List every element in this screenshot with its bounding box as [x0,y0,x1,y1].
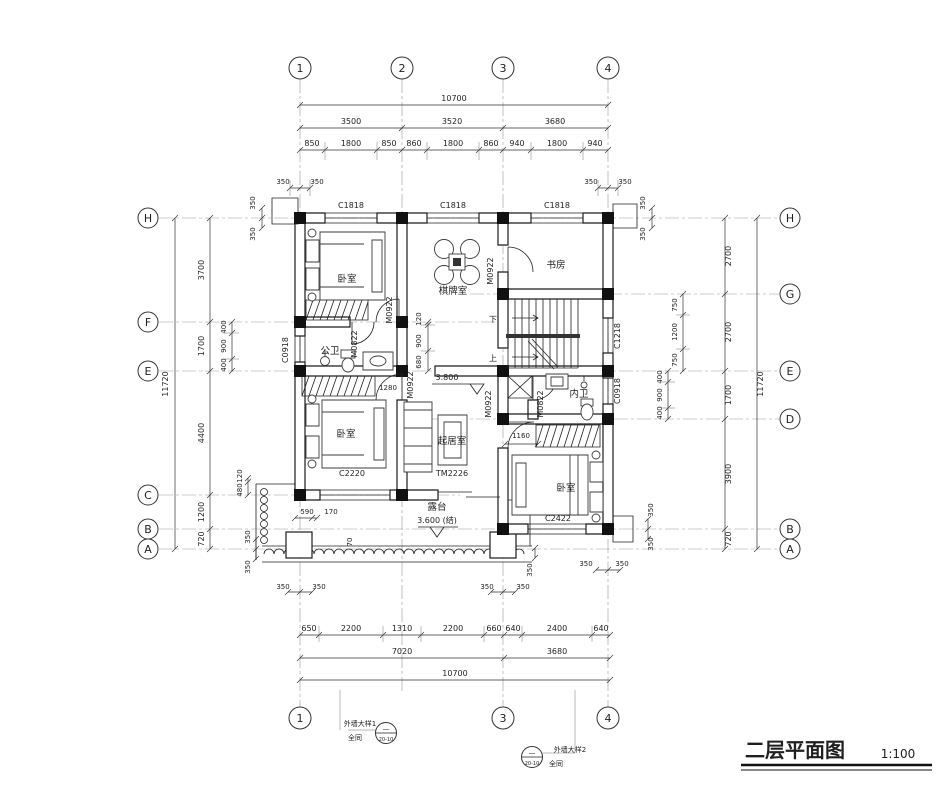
stair-up-label: 上 [489,354,497,363]
dim: 860 [483,139,498,148]
grid-right-A: A [786,543,794,556]
dim: 1700 [197,336,206,356]
title-text: 二层平面图 [745,738,845,762]
sliding-door-tm2226 [438,492,500,497]
dim: 850 [304,139,319,148]
room-inner-bath: 内卫 [569,388,589,400]
door-m0822-public-bath: M0822 [350,330,359,357]
grid-left-E: E [145,365,152,378]
dim: 1200 [671,323,679,341]
dim-350: 350 [249,196,257,209]
dim-350: 350 [647,503,655,516]
level-terrace: 3.600 (结) [417,515,457,525]
dim: 1800 [341,139,361,148]
dim-350: 350 [276,178,289,186]
detail-2-label: 外墙大样2 [554,745,586,754]
dim-350: 350 [647,537,655,550]
dim: 3700 [197,260,206,280]
dim: 2200 [443,624,463,633]
door-m0822-inner-bath: M0822 [536,390,545,417]
dim: 750 [671,353,679,366]
detail-1-note: 全同 [348,733,362,742]
dim: 3680 [545,117,565,126]
room-study: 书房 [546,259,565,271]
dim: 400 [656,370,664,383]
dim: 940 [509,139,524,148]
grid-col-2: 2 [399,62,406,75]
dim: 120 [236,469,244,482]
door-m0922-bedroom2: M0922 [406,371,415,398]
grid-left-C: C [144,489,152,502]
dim: 680 [415,355,423,368]
dim: 120 [415,312,423,325]
dim: 2700 [724,246,733,266]
dim-350: 350 [615,560,628,568]
grid-col-1: 1 [297,62,304,75]
room-game-room: 棋牌室 [439,285,468,297]
dim: 2200 [341,624,361,633]
dim: 1800 [443,139,463,148]
dim: 4400 [197,423,206,443]
dim: 900 [220,339,228,352]
dim-350: 350 [579,560,592,568]
title-scale: 1:100 [881,747,916,761]
room-living: 起居室 [438,435,467,447]
dim: 3900 [724,464,733,484]
grid-right-D: D [786,413,794,426]
dim-350: 350 [639,227,647,240]
dim: 3500 [341,117,361,126]
detail-1-label: 外墙大样1 [344,719,376,728]
detail-1-ref-top: — [383,725,390,733]
dim-closet-left: 1280 [379,384,397,392]
dim: 720 [724,531,733,546]
dim: 2400 [547,624,567,633]
dim: 1800 [547,139,567,148]
dim: 650 [301,624,316,633]
dim: 860 [406,139,421,148]
grid-bottom-4: 4 [605,712,612,725]
door-m0922-bedroom3: M0922 [484,390,493,417]
dim-350: 350 [526,563,534,576]
dim: 660 [486,624,501,633]
dim: 170 [324,508,337,516]
door-tm2226: TM2226 [435,469,468,478]
dim: 400 [220,320,228,333]
dim-350: 350 [312,583,325,591]
detail-2-ref-top: — [529,749,536,757]
dim: 1200 [197,502,206,522]
stair-down-label: 下 [489,315,497,324]
dim: 750 [671,298,679,311]
dim-350: 350 [480,583,493,591]
grid-right-G: G [786,288,795,301]
room-public-bath: 公卫 [320,346,340,357]
dim-right-total: 11720 [756,371,765,396]
detail-2-note: 全同 [549,759,563,768]
dim-350: 350 [618,178,631,186]
dim-350: 350 [276,583,289,591]
grid-right-B: B [786,523,794,536]
dim-350: 350 [249,227,257,240]
dim: 400 [656,406,664,419]
dim-left-total: 11720 [161,371,170,396]
dim-350: 350 [244,560,252,573]
dim-texts: 10700 3500 3520 3680 850 1800 850 860 18… [161,94,765,678]
dim-350: 350 [310,178,323,186]
dim-350: 350 [584,178,597,186]
window-c0918-right: C0918 [613,378,622,404]
dim-350: 350 [244,530,252,543]
dim: 640 [593,624,608,633]
dim: 900 [415,334,423,347]
grid-bottom-1: 1 [297,712,304,725]
grid-col-3: 3 [500,62,507,75]
dim: 400 [220,358,228,371]
terrace-post-right [490,532,516,558]
dim: 900 [656,388,664,401]
dim: 3520 [442,117,462,126]
dim-closet-right: 1160 [512,432,530,440]
window-c2220: C2220 [339,469,365,478]
grid-right-H: H [786,212,794,225]
dim-350: 350 [639,196,647,209]
dim: 2700 [724,322,733,342]
window-c1218-right: C1218 [613,323,622,349]
grid-col-4: 4 [605,62,612,75]
dim: 1700 [724,385,733,405]
grid-bottom-3: 3 [500,712,507,725]
grid-left-F: F [145,316,151,329]
dim: 940 [587,139,602,148]
staircase [506,299,580,369]
dim: 640 [505,624,520,633]
dim-350: 350 [516,583,529,591]
door-m0922-study: M0922 [486,257,495,284]
room-bedroom-3: 卧室 [556,482,575,494]
terrace-post-left [286,532,312,558]
grid-right-E: E [787,365,794,378]
window-c1818-2: C1818 [440,201,466,210]
window-c0918-left: C0918 [281,337,290,363]
window-c1818-1: C1818 [338,201,364,210]
duct-shaft [508,376,532,398]
detail-1-ref: 20-10 [379,737,394,743]
detail-callout-1: 外墙大样1 全同 — 20-10 [340,690,397,744]
room-bedroom-1: 卧室 [337,273,356,285]
grid-left-B: B [144,523,152,536]
window-c2422: C2422 [545,514,571,523]
dim: 720 [197,531,206,546]
dim: 590 [300,508,313,516]
grid-left-H: H [144,212,152,225]
grid-axis-lines [159,79,779,707]
grid-left-A: A [144,543,152,556]
floor-plan-canvas: 1 2 3 4 1 3 4 H F E C B A H G E D B A 10… [0,0,940,798]
dim: 3680 [547,647,567,656]
level-floor: 3.800 [436,373,459,382]
drawing-title: 二层平面图 1:100 [741,738,932,770]
room-bedroom-2: 卧室 [336,428,355,440]
room-terrace: 露台 [427,501,446,513]
dim: 70 [346,538,354,547]
grid-bubbles: 1 2 3 4 1 3 4 H F E C B A H G E D B A [138,57,800,729]
dim: 850 [381,139,396,148]
detail-2-ref: 20-10 [525,761,540,767]
dim-lines [172,102,760,683]
dim: 7020 [392,647,412,656]
dim-top-total: 10700 [441,94,466,103]
dim-bottom-total: 10700 [442,669,467,678]
dim: 1310 [392,624,412,633]
detail-callout-2: — 20-10 外墙大样2 全同 [522,690,587,768]
window-c1818-3: C1818 [544,201,570,210]
dim: 480 [236,483,244,496]
door-m0922-bedroom1: M0922 [385,296,394,323]
